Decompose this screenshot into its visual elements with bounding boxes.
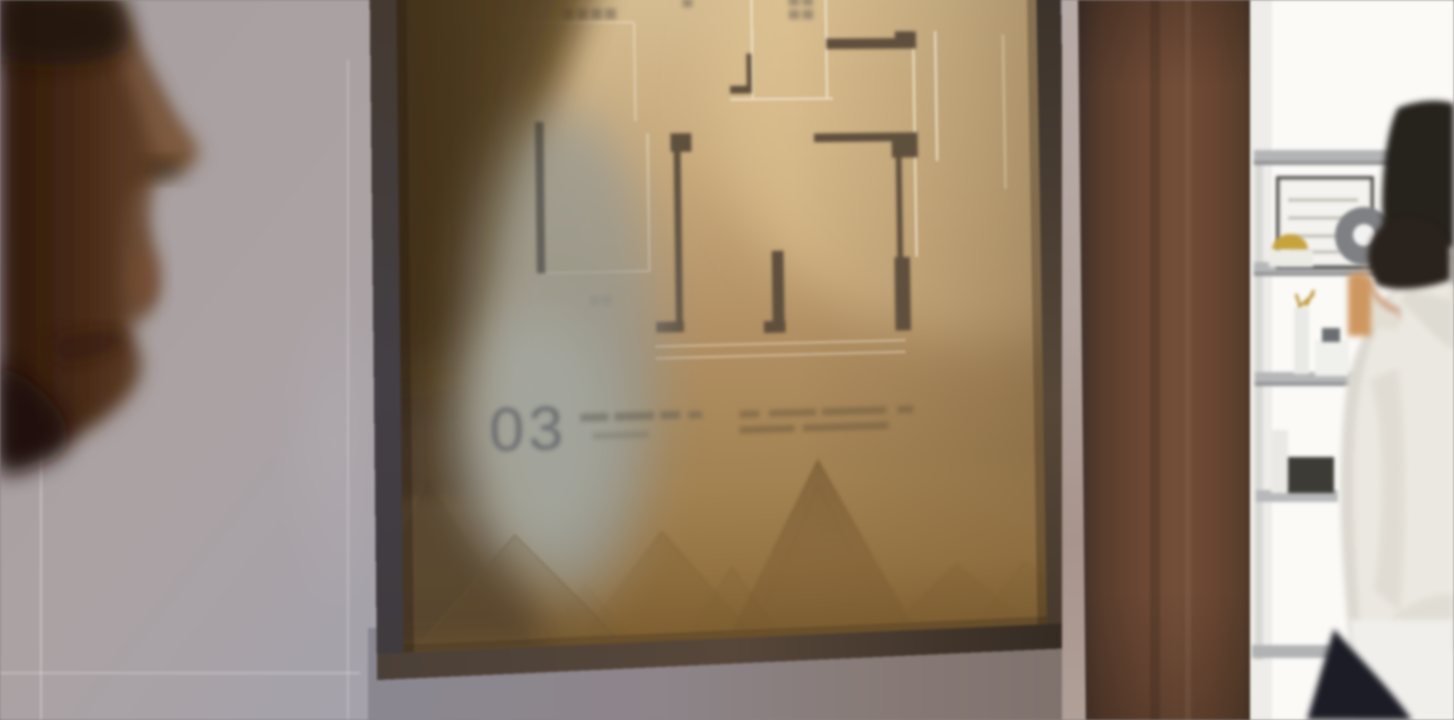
svg-text:03: 03 <box>489 395 568 465</box>
